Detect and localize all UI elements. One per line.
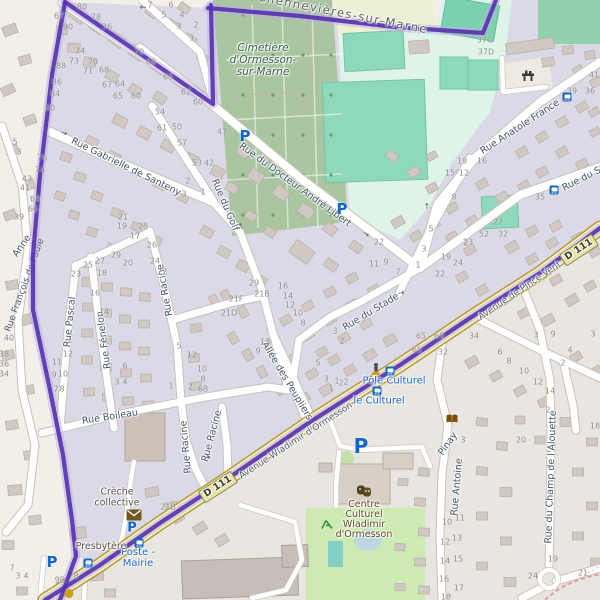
poi-label: Presbytère [76,542,127,553]
house-number: 68 [146,58,156,67]
house-number: 1 [189,34,194,43]
house-number: 1 [415,261,420,270]
house-number: 25 [83,261,93,270]
house-number: 9 [550,330,555,339]
house-number: 7 [9,564,14,573]
house-number: 8 [300,319,305,328]
map-canvas[interactable]: Rue François de Paule Chennevières-sur-M… [0,0,600,600]
house-number: 24 [150,257,160,266]
house-number: 50 [172,123,182,132]
house-number: 40 [4,334,14,343]
house-number: 23 [463,238,473,247]
house-number: 12 [459,169,469,178]
house-number: 35 [535,193,545,202]
house-number: 24 [528,572,538,581]
house-number: 66 [163,73,173,82]
bus-stop-icon [386,367,395,376]
cemetery-label: Cimetièred'Ormesson-sur-Marne [230,42,297,78]
house-number: 65 - 69 [416,332,444,341]
house-number: 88 [56,62,66,71]
house-number: 10 [293,309,303,318]
house-number: 41 [20,184,30,193]
map-labels-layer: Chennevières-sur-MarneCimetièred'Ormesso… [0,0,600,600]
house-number: 3 [323,375,328,384]
house-number: 60 [193,98,203,107]
house-number: 68 [99,66,109,75]
street-label: Rue Gabrielle de Santeny [69,136,182,199]
house-number: 71 [83,67,93,76]
statue-icon [371,361,381,380]
house-number: 18 [441,593,451,600]
street-label: Rue Pascal [62,296,78,348]
house-number: 70 [134,48,144,57]
house-number: 6 [122,362,127,371]
house-number: 1 [328,384,333,393]
post-box-icon [127,506,142,525]
house-number: 3 [15,572,20,581]
house-number: 32 [498,230,508,239]
house-number: 65 [412,346,422,355]
house-number: 1 [200,188,205,197]
house-number: 21D [221,309,237,318]
house-number: 6B [198,385,209,394]
house-number: 19 [441,253,451,262]
house-number: 6 [497,348,502,357]
street-label: Allée des Peupliers [259,340,315,422]
parking-icon: P [47,553,58,571]
house-number: 7 [395,268,400,277]
street-label: Rue Fénelon [95,310,114,369]
house-number: 5 [161,11,166,20]
house-number: 3 [332,327,337,336]
house-number: 2 [343,378,348,387]
house-number: 32 [438,348,448,357]
house-number: 5 [428,225,433,234]
house-number: 61 [157,124,167,133]
house-number: 5 [12,138,17,147]
house-number: 18 [590,422,600,431]
house-number: 2 [545,406,550,415]
house-number: 16 [278,282,288,291]
house-number: 12 [440,538,450,547]
house-number: 22 [374,238,384,247]
oneway-arrow-icon: → [140,3,147,12]
house-number: 18 [97,269,107,278]
road-ref-badge: D 111 [198,471,238,504]
street-label: Rue du Sta [560,160,600,193]
house-number: 43 [22,175,32,184]
house-number: 11 [369,260,379,269]
house-number: 36 [0,360,9,369]
bus-stop-label: le Culturel [353,396,404,407]
house-number: 7 [147,1,152,10]
house-number: 10 [197,365,207,374]
house-number: 14 [283,292,293,301]
house-number: 27 [95,257,105,266]
house-number: 14 [545,387,555,396]
house-number: 3 [533,331,538,340]
house-number: 66 [28,205,38,214]
house-number: 17 [454,584,464,593]
house-number: 2 [187,383,192,392]
house-number: 5 [176,342,181,351]
house-number: 5 [315,359,320,368]
house-number: 2 [339,337,344,346]
house-number: 14 [99,308,109,317]
house-number: 16 [90,289,100,298]
house-number: 54 [155,108,165,117]
house-number: 21B [160,503,176,512]
house-number: 62 [181,88,191,97]
house-number: 74 [35,166,45,175]
house-number: 12 [63,350,73,359]
house-number: 4 [23,572,28,581]
house-number: 3 [421,245,426,254]
house-number: 57 [177,139,187,148]
house-number: 86 [52,78,62,87]
house-number: 12 [533,378,543,387]
house-number: 14 [440,557,450,566]
house-number: 3 [181,190,186,199]
house-number: 9 [51,371,56,380]
house-number: 16 [439,575,449,584]
street-label: Avenue de Pince Vent [477,260,563,323]
house-number: 16 [477,157,487,166]
house-number: 42 [204,159,214,168]
house-number: 74 [75,47,85,56]
bus-stop-icon [135,539,144,548]
street-label: Rue Racine [178,420,194,474]
theatre-masks-icon [357,482,371,501]
oneway-arrow-icon: → [59,128,68,139]
house-number: 29 [111,251,121,260]
house-number: 53 [192,159,202,168]
house-number: 36 [585,87,595,96]
house-number: 19 [548,555,558,564]
street-label: Rue Antoine [449,458,465,516]
oneway-arrow-icon: → [361,228,372,239]
house-number: 2 [560,359,565,368]
house-number: 7 [53,385,58,394]
house-number: 6 [168,1,173,10]
house-number: 8 [200,375,205,384]
house-number: 9 [383,258,388,267]
bus-stop-icon [563,93,572,102]
house-number: 34 [469,332,479,341]
playground-icon [321,515,333,534]
house-number: 15 [453,555,463,564]
house-number: 28 [138,222,148,231]
house-number: 68 [30,195,40,204]
oneway-arrow-icon: → [236,221,247,231]
house-number: 10 [58,370,68,379]
bus-stop-icon [373,387,382,396]
street-label: Anne [10,233,33,259]
parking-icon: P [354,434,369,458]
house-number: 90 [63,23,73,32]
house-number: 60 [131,92,141,101]
house-number: 38 [0,350,9,359]
house-number: 15 [445,169,455,178]
house-number: 2 [193,21,198,30]
house-number: 17 [130,232,140,241]
parking-icon: P [240,127,251,145]
house-number: 8 [59,385,64,394]
street-label: Rue du Champ de l'Alouette [543,410,559,543]
house-number: 78 [91,13,101,22]
house-number: 22 [435,270,445,279]
admin-boundary-label: Chennevières-sur-Marne [257,0,430,36]
house-number: 19 [117,222,127,231]
road-ref-badge: D 111 [559,234,599,267]
house-number: 21F [229,295,244,304]
house-number: 67 [54,12,64,21]
house-number: 64 [115,80,125,89]
house-number: 21 [118,213,128,222]
house-number: 11 [52,358,62,367]
house-number: 52 [479,230,489,239]
house-number: 26 [147,241,157,250]
library-book-icon [446,410,459,429]
house-number: 10 [442,518,452,527]
house-number: 37G [477,36,493,45]
street-label: Pinay [436,430,460,457]
house-number: 8 [506,357,511,366]
house-number: 67 [102,81,112,90]
house-number: 4 [122,378,127,387]
house-number: 10 [519,367,529,376]
house-number: 20 [123,259,133,268]
house-number: 80 [77,3,87,12]
house-number: 13 [260,338,270,347]
house-number: 34 [0,370,9,379]
house-number: 4 [179,11,184,20]
bus-stop-icon [550,186,559,195]
house-number: 8 [73,572,78,581]
house-number: 37D [478,48,494,57]
house-number: 12 [187,351,197,360]
house-number: 9 [255,347,260,356]
house-number: 3 [16,148,21,157]
house-number: 13 [452,534,462,543]
poi-label: CentreCulturelWladimird'Ormesson [336,500,393,540]
house-number: 70 [88,58,98,67]
house-number: 11 [455,514,465,523]
house-number: 84 [50,90,60,99]
place-of-worship-icon [64,584,74,600]
house-number: 3 [460,436,465,445]
house-number: 47 [217,128,227,137]
house-number: 80 [45,104,55,113]
fitness-station-icon [521,67,535,86]
bus-stop-icon [84,559,93,568]
house-number: 21B [254,290,270,299]
oneway-arrow-icon: → [397,288,405,298]
house-number: 3 [590,330,595,339]
street-label: Rue du Stade [341,291,401,333]
house-number: 3 [114,378,119,387]
house-number: 3 [176,22,181,31]
house-number: 23 [71,270,81,279]
house-number: 73 [69,57,79,66]
house-number: 8 [451,193,456,202]
house-number: 20 [516,436,526,445]
house-number: 65 [113,92,123,101]
street-label: Rue Anatole France [478,97,561,156]
house-number: 4 [567,346,572,355]
house-number: 39 [14,213,24,222]
street-label: Rue Boileau [81,407,138,427]
house-number: 27 [493,218,503,227]
house-number: 41 [589,71,599,80]
house-number: 1 [168,382,173,391]
house-number: 2 [185,177,190,186]
house-number: 76 [102,23,112,32]
oneway-arrow-icon: → [423,203,432,210]
house-number: 19 [457,157,467,166]
street-label: Avenue Wladimir d'Ormesson [238,401,355,482]
house-number: 24 [453,259,463,268]
house-number: 21 [578,569,588,578]
parking-icon: P [337,200,348,218]
house-number: 1 [334,377,339,386]
house-number: 29 [249,279,259,288]
house-number: 22 [157,268,167,277]
house-number: 76 [37,154,47,163]
